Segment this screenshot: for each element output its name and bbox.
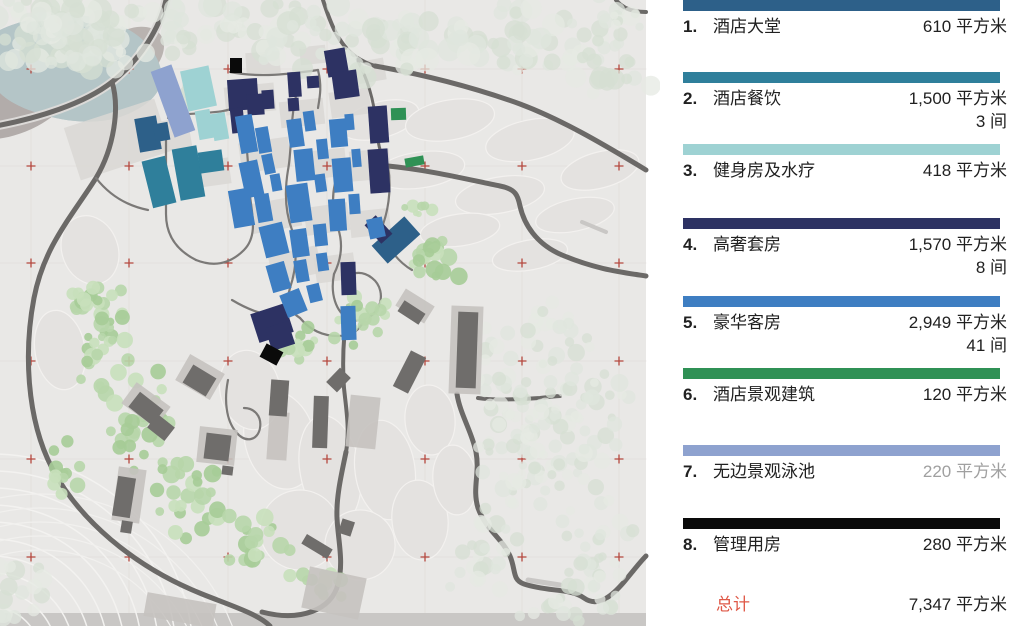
legend-item: 3.健身房及水疗418 平方米 [683,144,1007,181]
site-plan-page: 1.酒店大堂610 平方米2.酒店餐饮1,500 平方米3 间3.健身房及水疗4… [0,0,1024,626]
legend-item-area: 2,949 平方米 [909,313,1007,333]
legend-total-row: 总计7,347 平方米 [683,595,1007,615]
legend-item-number: 6. [683,385,713,405]
area-unit: 平方米 [956,313,1007,332]
legend-color-bar [683,144,1000,155]
legend-item-label: 高奢套房 [713,235,909,255]
total-area: 7,347 平方米 [909,595,1007,615]
legend-item-number: 7. [683,462,713,482]
legend-item-label: 管理用房 [713,535,923,555]
legend-item-label: 酒店餐饮 [713,89,909,109]
legend-color-bar [683,0,1000,11]
total-label: 总计 [716,595,909,615]
legend-item-area: 120 平方米 [923,385,1007,405]
legend-item-area: 1,500 平方米 [909,89,1007,109]
legend-color-bar [683,518,1000,529]
legend-item-area: 280 平方米 [923,535,1007,555]
legend-item-number: 2. [683,89,713,109]
legend-item-label: 豪华客房 [713,313,909,333]
legend-item-label: 酒店大堂 [713,17,923,37]
legend-item-area: 1,570 平方米 [909,235,1007,255]
legend-item-area: 610 平方米 [923,17,1007,37]
area-value: 610 [923,17,951,36]
legend-item: 2.酒店餐饮1,500 平方米3 间 [683,72,1007,132]
total-value: 7,347 [909,595,952,614]
map-canvas [0,0,660,626]
legend-item-area: 418 平方米 [923,161,1007,181]
legend-item-area: 220 平方米 [923,462,1007,482]
legend-item: 7.无边景观泳池220 平方米 [683,445,1007,482]
legend-item: 8.管理用房280 平方米 [683,518,1007,555]
legend-item-rooms: 8 间 [683,258,1007,278]
area-unit: 平方米 [956,462,1007,481]
area-value: 1,500 [909,89,952,108]
area-unit: 平方米 [956,385,1007,404]
legend-item-number: 1. [683,17,713,37]
area-unit: 平方米 [956,89,1007,108]
legend-color-bar [683,72,1000,83]
legend-panel: 1.酒店大堂610 平方米2.酒店餐饮1,500 平方米3 间3.健身房及水疗4… [683,0,1007,626]
area-unit: 平方米 [956,535,1007,554]
legend-color-bar [683,218,1000,229]
legend-color-bar [683,296,1000,307]
area-value: 2,949 [909,313,952,332]
legend-item: 1.酒店大堂610 平方米 [683,0,1007,37]
legend-item-number: 5. [683,313,713,333]
area-value: 1,570 [909,235,952,254]
area-value: 120 [923,385,951,404]
area-value: 418 [923,161,951,180]
legend-item-number: 4. [683,235,713,255]
area-unit: 平方米 [956,17,1007,36]
legend-item-rooms: 3 间 [683,112,1007,132]
area-value: 280 [923,535,951,554]
legend-item: 5.豪华客房2,949 平方米41 间 [683,296,1007,356]
area-unit: 平方米 [956,235,1007,254]
site-plan-map [0,0,660,626]
total-unit: 平方米 [956,595,1007,614]
area-unit: 平方米 [956,161,1007,180]
legend-item: 4.高奢套房1,570 平方米8 间 [683,218,1007,278]
legend-item-label: 无边景观泳池 [713,462,923,482]
area-value: 220 [923,462,951,481]
legend-item: 6.酒店景观建筑120 平方米 [683,368,1007,405]
legend-item-label: 健身房及水疗 [713,161,923,181]
legend-item-label: 酒店景观建筑 [713,385,923,405]
legend-item-rooms: 41 间 [683,336,1007,356]
legend-item-number: 8. [683,535,713,555]
legend-color-bar [683,368,1000,379]
legend-color-bar [683,445,1000,456]
legend-item-number: 3. [683,161,713,181]
